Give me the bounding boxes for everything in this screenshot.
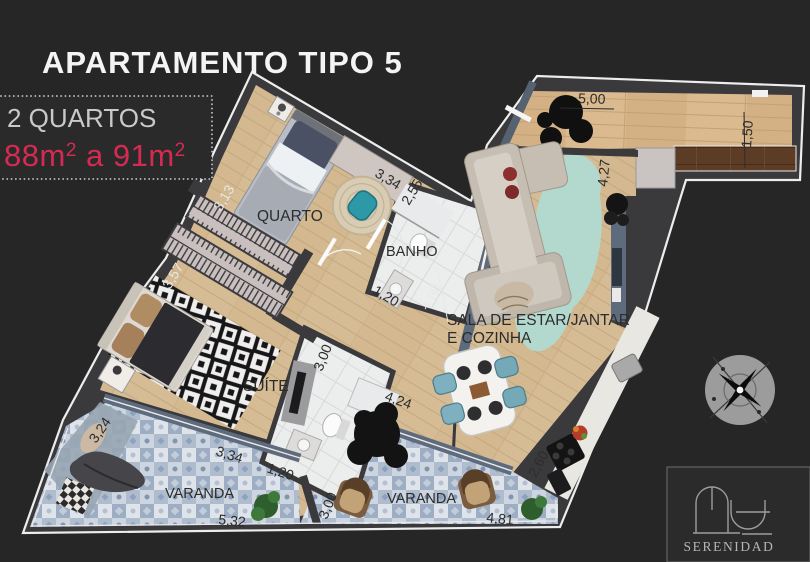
- svg-text:88m2 a 91m2: 88m2 a 91m2: [4, 138, 186, 173]
- svg-text:VARANDA: VARANDA: [165, 486, 234, 502]
- svg-text:4,27: 4,27: [594, 158, 613, 187]
- svg-text:E COZINHA: E COZINHA: [447, 330, 532, 347]
- svg-text:5,32: 5,32: [218, 511, 247, 530]
- svg-text:SALA DE ESTAR/JANTAR: SALA DE ESTAR/JANTAR: [447, 312, 630, 329]
- svg-text:SUÍTE: SUÍTE: [243, 378, 289, 395]
- svg-text:5,00: 5,00: [578, 90, 606, 107]
- svg-text:4,81: 4,81: [486, 509, 515, 528]
- svg-text:VARANDA: VARANDA: [387, 491, 456, 507]
- svg-text:BANHO: BANHO: [386, 244, 438, 260]
- svg-text:2 QUARTOS: 2 QUARTOS: [7, 103, 156, 133]
- svg-text:1,50: 1,50: [738, 120, 756, 149]
- svg-text:APARTAMENTO TIPO 5: APARTAMENTO TIPO 5: [42, 45, 403, 80]
- svg-text:QUARTO: QUARTO: [257, 208, 323, 225]
- svg-text:SERENIDAD: SERENIDAD: [684, 539, 775, 554]
